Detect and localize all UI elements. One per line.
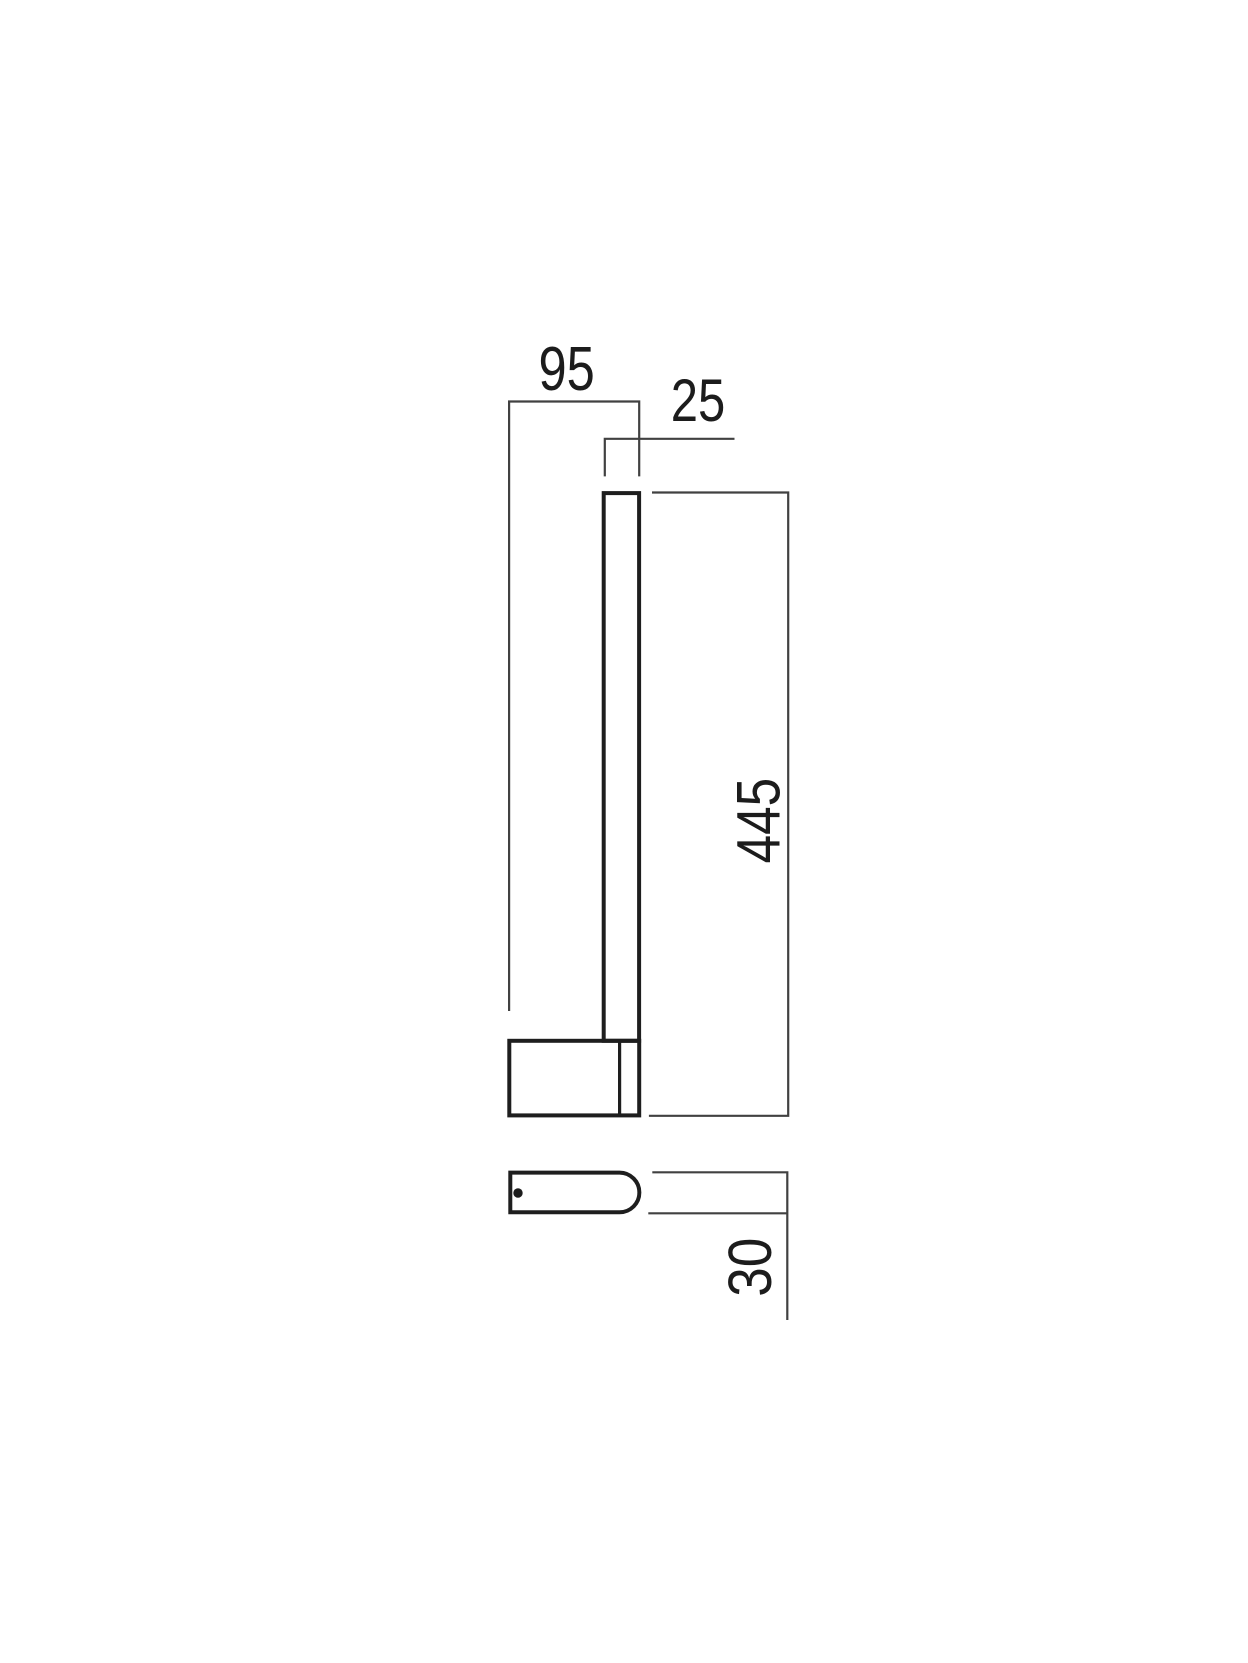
svg-text:95: 95: [538, 335, 594, 404]
svg-text:30: 30: [717, 1238, 785, 1297]
svg-text:25: 25: [671, 366, 726, 434]
svg-text:445: 445: [724, 778, 792, 863]
